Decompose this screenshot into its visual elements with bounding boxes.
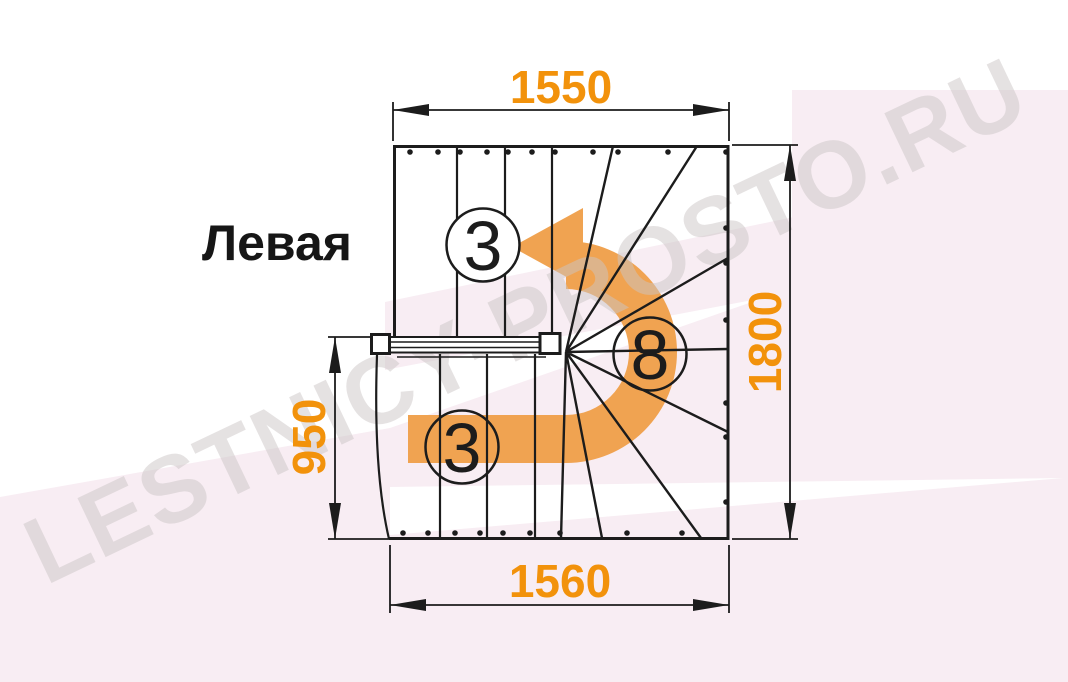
right-newel-post bbox=[540, 334, 560, 354]
dim-top-value: 1550 bbox=[510, 61, 612, 113]
landing-beam bbox=[374, 337, 546, 353]
left-newel-post bbox=[372, 335, 390, 354]
dim-right-value: 1800 bbox=[739, 291, 791, 393]
staircase-plan-drawing: LESTNICY-PROSTO.RU 3 bbox=[0, 0, 1068, 682]
upper-flight-count: 3 bbox=[464, 207, 503, 285]
lower-flight-count: 3 bbox=[443, 409, 482, 487]
dim-bottom-value: 1560 bbox=[509, 555, 611, 607]
staircase-plan-page: LESTNICY-PROSTO.RU 3 bbox=[0, 0, 1068, 682]
page-title: Левая bbox=[202, 215, 352, 271]
winder-count: 8 bbox=[631, 316, 670, 394]
dim-left-value: 950 bbox=[283, 399, 335, 476]
